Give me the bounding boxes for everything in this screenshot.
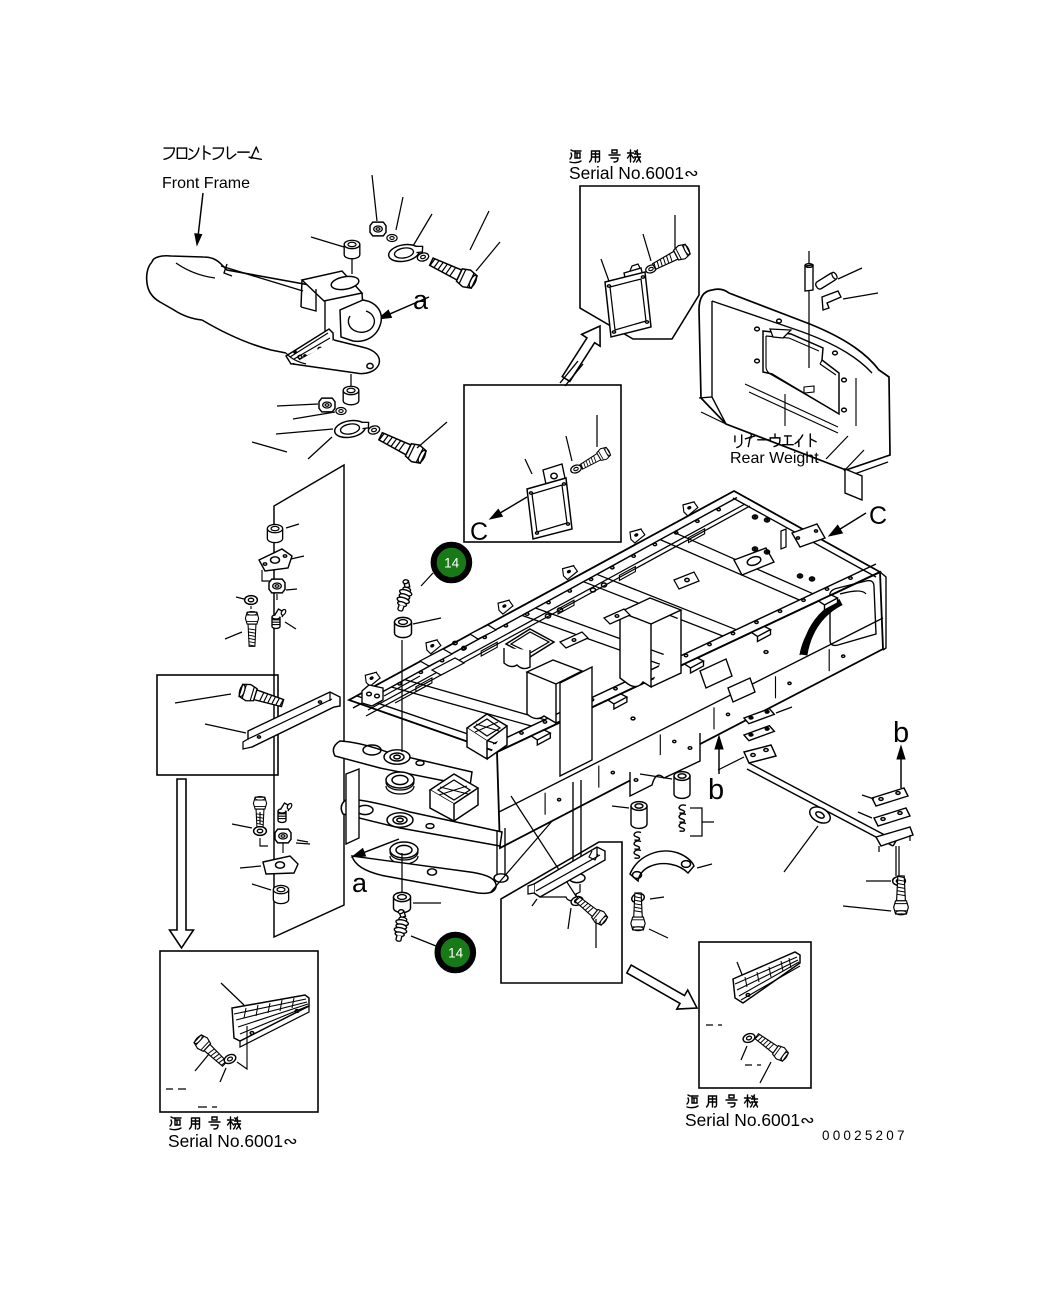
svg-text:Serial No.6001∾: Serial No.6001∾ [569,163,699,183]
svg-text:Serial No.6001∾: Serial No.6001∾ [168,1131,298,1151]
svg-text:C: C [869,502,887,530]
svg-text:00025207: 00025207 [822,1128,908,1143]
svg-text:b: b [708,774,724,806]
svg-text:14: 14 [448,946,464,961]
svg-text:b: b [893,717,909,749]
svg-text:Serial No.6001∾: Serial No.6001∾ [685,1110,815,1130]
svg-text:Rear Weight: Rear Weight [730,450,819,467]
svg-text:a: a [352,868,368,898]
svg-text:14: 14 [444,556,460,571]
svg-text:Front Frame: Front Frame [162,175,250,192]
